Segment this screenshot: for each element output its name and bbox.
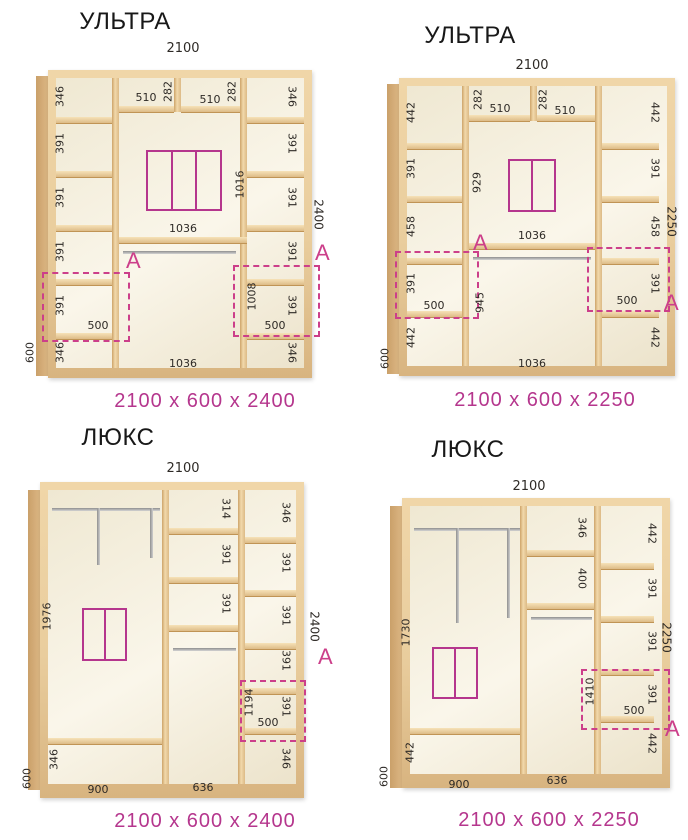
cell-height-label: 391 [54,230,67,274]
drawer-unit [146,150,222,211]
shelf-width-label: 1036 [502,229,562,242]
size-caption: 2100 x 600 x 2250 [429,809,669,832]
cell-height-label: 391 [649,262,662,306]
cell-height-label: 346 [280,491,293,535]
cell-height-label: 391 [220,582,233,626]
cell-height-label: 391 [646,567,659,611]
cell-height-label: 391 [646,620,659,664]
divider [595,86,602,366]
diagram-title: УЛЬТРА [390,22,550,50]
shelf-width-label: 500 [255,319,295,332]
divider [174,78,181,112]
cell-height-label: 391 [54,284,67,328]
dim-width-label: 2100 [469,480,589,493]
bottom-width-label: 900 [68,783,128,796]
drawer-unit [432,647,478,699]
section-height-label: 1008 [246,275,259,319]
diagram-title: ЛЮКС [388,436,548,464]
cell-height-label: 346 [286,331,299,375]
shelf [169,625,238,632]
cell-height-label: 442 [405,316,418,360]
wardrobe-dimension-sheet: УЛЬТРА 2100 600 2400 2100 x 600 x 2400 [0,0,688,840]
rod-hook [150,508,153,558]
cell-height-label: 442 [649,91,662,135]
cell-height-label: 282 [226,70,239,114]
cell-height-label: 442 [646,512,659,556]
cell-height-label: 442 [404,731,417,775]
cell-height-label: 458 [405,205,418,249]
divider [594,506,601,774]
bottom-width-label: 636 [527,774,587,787]
shelf [602,196,659,203]
bottom-width-label: 900 [429,778,489,791]
section-height-label: 929 [471,161,484,205]
cell-height-label: 458 [649,205,662,249]
section-height-label: 1976 [41,595,54,639]
hanging-rod [414,528,520,531]
side-panel [28,490,40,790]
hanging-rod [173,648,236,651]
section-height-label: 1730 [400,611,413,655]
zone-a-label: A [473,230,488,256]
cell-height-label: 391 [280,639,293,683]
dim-depth-label: 600 [378,755,391,799]
cell-height-label: 282 [162,70,175,114]
dim-width-label: 2100 [123,42,243,55]
cell-height-label: 346 [54,75,67,119]
dim-width-label: 2100 [472,59,592,72]
shelf [48,738,162,745]
size-caption: 2100 x 600 x 2400 [85,810,325,833]
divider [520,506,527,774]
shelf [119,237,247,244]
divider [162,490,169,784]
wardrobe-frame: A A 346 391 391 391 391 346 346 391 391 … [48,70,312,378]
section-height-label: 1410 [584,670,597,714]
rod-hook [456,528,459,623]
zone-a-label: A [318,644,333,670]
wardrobe-frame: A 1730 442 346 400 442 391 391 391 442 5… [402,498,670,788]
shelf-width-label: 500 [607,294,647,307]
shelf [407,196,462,203]
zone-a-label: A [126,248,141,274]
wardrobe-frame: A A 442 391 458 391 442 442 391 458 391 … [399,78,675,376]
divider [462,86,469,366]
cell-height-label: 391 [286,230,299,274]
cell-height-label: 442 [649,316,662,360]
cell-height-label: 442 [646,722,659,766]
dim-height-label: 2400 [308,605,321,649]
wardrobe-interior [407,86,667,366]
shelf-width-label: 500 [614,704,654,717]
cell-height-label: 346 [280,737,293,781]
wardrobe-diagram-lux-2400: ЛЮКС 2100 600 2400 2100 x 600 x 2400 A [0,420,344,840]
bottom-width-label: 1036 [502,357,562,370]
drawer-unit [508,159,556,212]
section-height-label: 1194 [243,681,256,725]
cell-height-label: 442 [405,91,418,135]
wardrobe-diagram-ultra-2400: УЛЬТРА 2100 600 2400 2100 x 600 x 2400 [0,0,344,420]
wardrobe-diagram-lux-2250: ЛЮКС 2100 600 2250 900 636 2100 x 600 x … [344,420,688,840]
cell-height-label: 391 [286,122,299,166]
dim-height-label: 2250 [665,200,678,244]
shelf [410,728,520,735]
zone-a-label: A [665,716,680,742]
zone-a-label: A [664,290,679,316]
dim-height-label: 2400 [312,193,325,237]
shelf-width-label: 500 [78,319,118,332]
side-panel [387,84,399,374]
shelf [527,603,594,610]
shelf-width-label: 500 [414,299,454,312]
cell-height-label: 391 [54,122,67,166]
dim-height-label: 2250 [660,616,673,660]
section-height-label: 945 [474,281,487,325]
cell-height-label: 391 [405,147,418,191]
cell-height-label: 391 [54,176,67,220]
section-height-label: 1016 [234,163,247,207]
hanging-rod [473,257,591,260]
size-caption: 2100 x 600 x 2250 [425,389,665,412]
rod-hook [507,528,510,618]
cell-height-label: 346 [286,75,299,119]
wardrobe-diagram-ultra-2250: УЛЬТРА 2100 600 2250 2100 x 600 x 2250 [344,0,688,420]
cell-height-label: 391 [220,533,233,577]
cell-height-label: 346 [54,331,67,375]
dim-depth-label: 600 [21,757,34,801]
cell-height-label: 391 [649,147,662,191]
drawer-unit [82,608,127,661]
dim-depth-label: 600 [24,331,37,375]
bottom-width-label: 636 [173,781,233,794]
cell-height-label: 391 [280,541,293,585]
hanging-rod [52,508,160,511]
wardrobe-frame: A 1976 346 900 636 314 391 391 346 391 3… [40,482,304,798]
cell-height-label: 314 [220,487,233,531]
diagram-title: ЛЮКС [38,424,198,452]
diagram-title: УЛЬТРА [45,8,205,36]
dim-depth-label: 600 [379,337,392,381]
dim-width-label: 2100 [123,462,243,475]
shelf-width-label: 510 [540,104,590,117]
bottom-width-label: 1036 [153,357,213,370]
shelf-width-label: 510 [475,102,525,115]
shelf-width-label: 1036 [153,222,213,235]
cell-height-label: 400 [576,557,589,601]
rod-hook [97,508,100,565]
size-caption: 2100 x 600 x 2400 [85,390,325,413]
cell-height-label: 391 [280,594,293,638]
zone-a-label: A [315,240,330,266]
cell-height-label: 346 [48,738,61,782]
hanging-rod [531,617,592,620]
cell-height-label: 346 [576,506,589,550]
cell-height-label: 391 [286,176,299,220]
